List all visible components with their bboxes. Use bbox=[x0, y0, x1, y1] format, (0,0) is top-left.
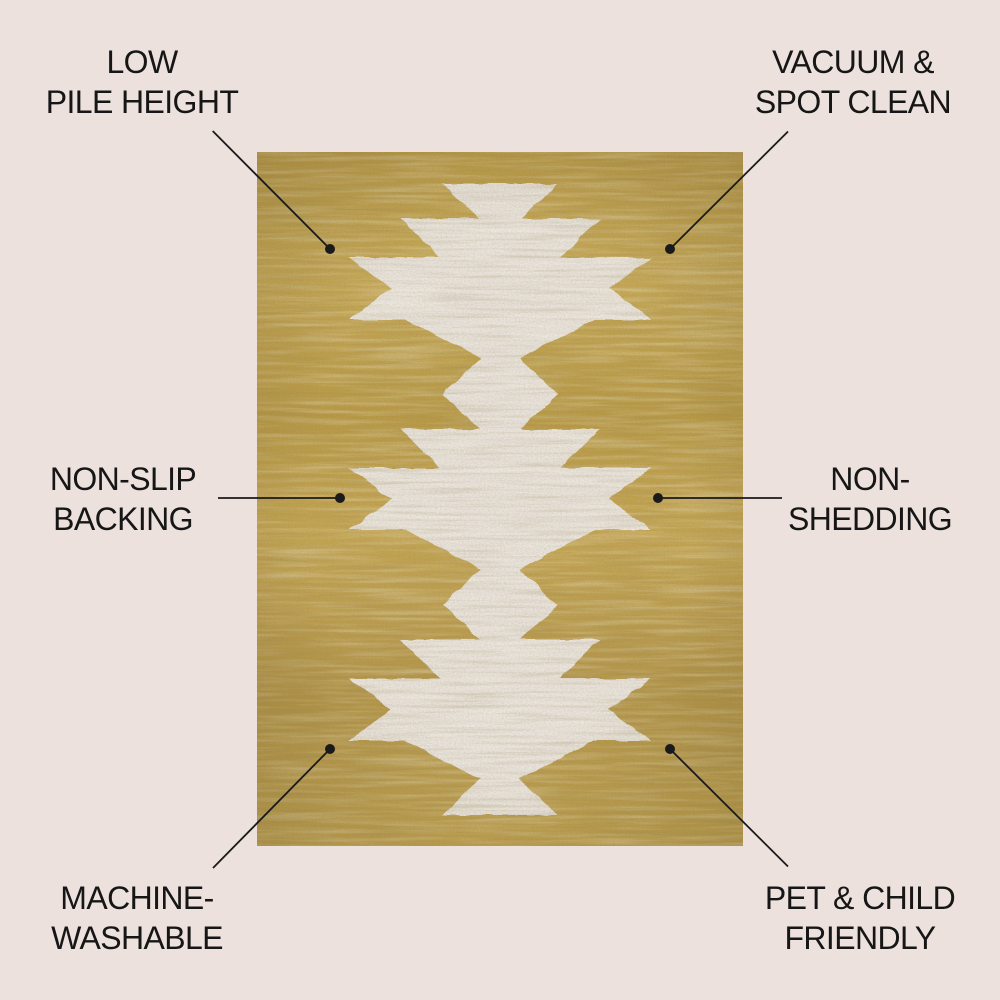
feature-label-line: FRIENDLY bbox=[765, 918, 955, 958]
feature-label-line: WASHABLE bbox=[51, 918, 223, 958]
feature-label-line: SHEDDING bbox=[788, 499, 952, 539]
product-feature-diagram: LOW PILE HEIGHT VACUUM & SPOT CLEAN NON-… bbox=[0, 0, 1000, 1000]
rug-vignette bbox=[257, 152, 743, 846]
feature-label-line: MACHINE- bbox=[51, 878, 223, 918]
feature-label-line: LOW bbox=[46, 42, 239, 82]
feature-label-line: PILE HEIGHT bbox=[46, 82, 239, 122]
feature-label-line: PET & CHILD bbox=[765, 878, 955, 918]
feature-label-vacuum-spot-clean: VACUUM & SPOT CLEAN bbox=[755, 42, 951, 122]
rug-graphic bbox=[257, 152, 743, 846]
feature-label-line: NON-SLIP bbox=[50, 459, 196, 499]
feature-label-line: BACKING bbox=[50, 499, 196, 539]
feature-label-pet-child-friendly: PET & CHILD FRIENDLY bbox=[765, 878, 955, 958]
feature-label-low-pile-height: LOW PILE HEIGHT bbox=[46, 42, 239, 122]
feature-label-line: VACUUM & bbox=[755, 42, 951, 82]
feature-label-non-shedding: NON- SHEDDING bbox=[788, 459, 952, 539]
feature-label-machine-washable: MACHINE- WASHABLE bbox=[51, 878, 223, 958]
feature-label-line: NON- bbox=[788, 459, 952, 499]
rug-photo bbox=[257, 152, 743, 846]
feature-label-non-slip-backing: NON-SLIP BACKING bbox=[50, 459, 196, 539]
feature-label-line: SPOT CLEAN bbox=[755, 82, 951, 122]
